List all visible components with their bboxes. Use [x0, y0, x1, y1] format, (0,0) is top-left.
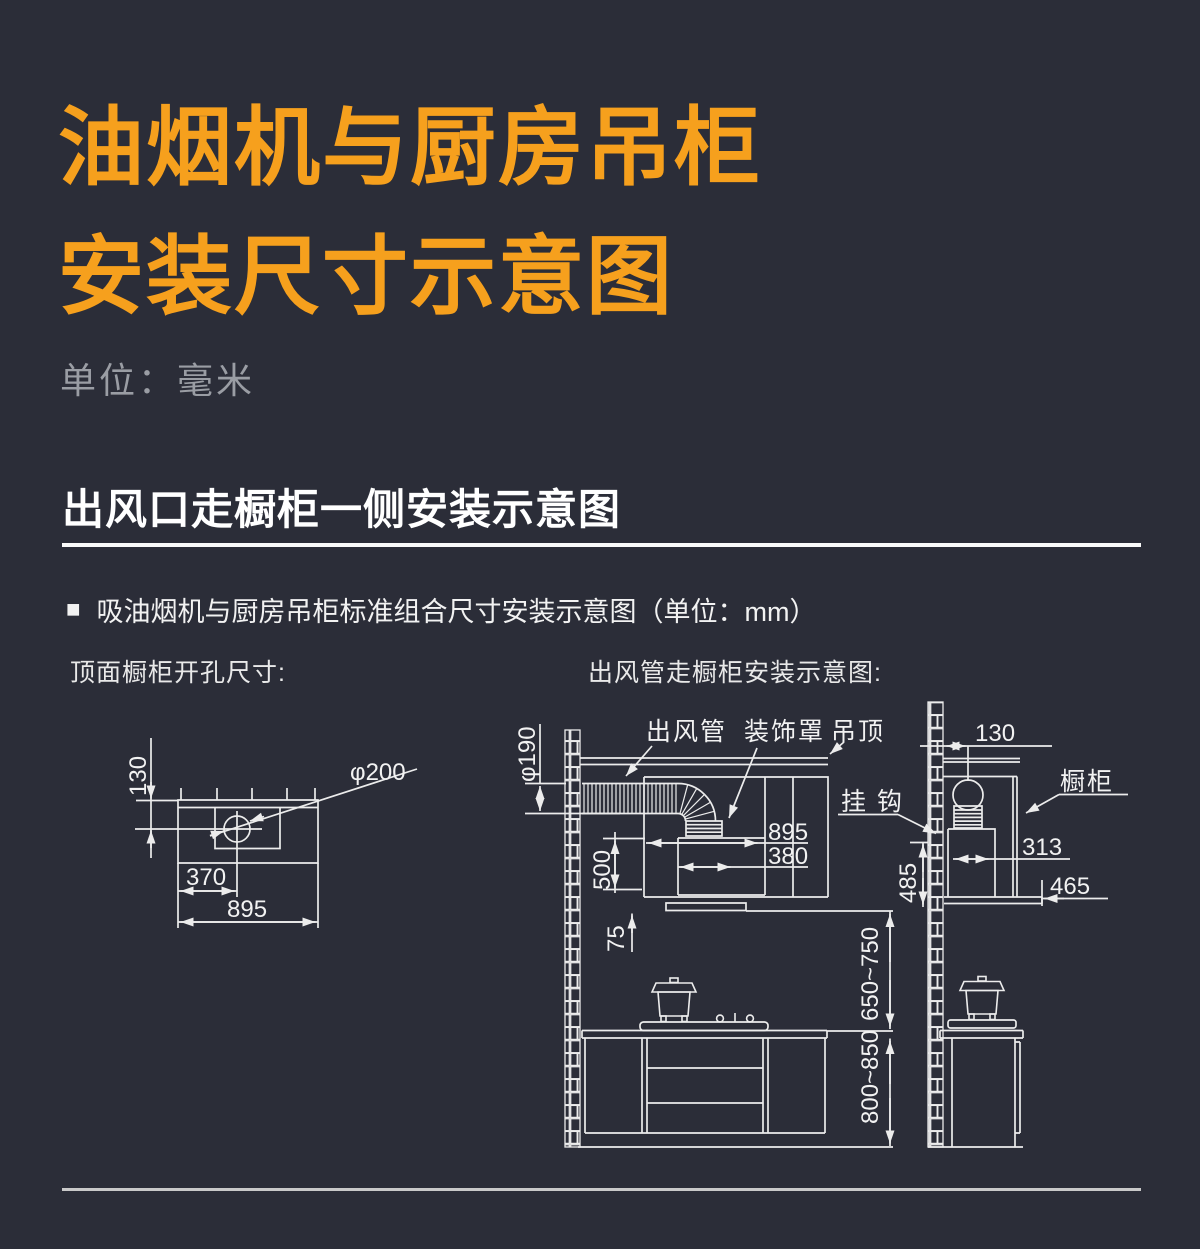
- dim-130r-label: 130: [975, 720, 1015, 747]
- right-burner: [717, 1013, 754, 1022]
- right-wall-brick: [928, 702, 943, 1147]
- dim-485-label: 485: [895, 863, 922, 903]
- right-diagram-label: 出风管走橱柜安装示意图:: [588, 653, 882, 689]
- dim-500-label: 500: [589, 850, 616, 890]
- section-subtitle-row: ■ 吸油烟机与厨房吊柜标准组合尺寸安装示意图（单位：mm）: [66, 590, 816, 629]
- hook-callout-leader: [838, 815, 936, 834]
- dim-313-label: 313: [1022, 834, 1062, 861]
- countertop-right: [940, 1031, 1023, 1039]
- ceiling-lines-right: [943, 759, 1020, 763]
- cabinet-callout-leader: [1026, 795, 1128, 814]
- duct-callout-leader: [626, 746, 652, 776]
- flex-duct-ribs: [584, 784, 676, 813]
- unit-note: 单位：毫米: [60, 352, 255, 404]
- page-title-line1: 油烟机与厨房吊柜: [58, 84, 762, 213]
- hood-bottom-lip: [666, 903, 746, 911]
- callout-cover-label: 装饰罩: [744, 718, 825, 746]
- dim-190-label: φ190: [514, 726, 541, 782]
- cabinet-right-outline: [943, 777, 1017, 898]
- dim-hood-895-label: 895: [768, 819, 808, 846]
- base-cabinet-right: [952, 1038, 1020, 1147]
- section-heading: 出风口走橱柜一侧安装示意图: [62, 476, 621, 537]
- bottom-separator: [62, 1188, 1141, 1191]
- hood-body-right: [948, 829, 995, 897]
- base-cabinet: [585, 1038, 825, 1133]
- installation-diagram: 130 φ200 370 895: [0, 700, 1200, 1160]
- page-title: 油烟机与厨房吊柜 安装尺寸示意图: [58, 84, 762, 342]
- dim-650-750-label: 650~750: [857, 927, 884, 1021]
- dim-465-label: 465: [1050, 873, 1090, 900]
- hood-bottom-right: [944, 897, 1042, 904]
- callout-hook-label: 挂 钩: [841, 788, 904, 816]
- ceiling-lines: [580, 758, 828, 765]
- heading-underline: [62, 543, 1141, 547]
- countertop: [582, 1031, 827, 1039]
- stove-panel: [640, 1022, 768, 1031]
- cooking-pot: [652, 978, 696, 1022]
- dim-130-label: 130: [125, 756, 152, 796]
- callout-ceiling-label: 吊顶: [831, 718, 885, 746]
- duct-collar: [686, 821, 722, 836]
- left-wall-brick: [565, 730, 580, 1147]
- callout-cabinet-label: 橱柜: [1060, 768, 1114, 796]
- dim-370-label: 370: [186, 864, 226, 891]
- cabinet-top-outline: [178, 800, 318, 863]
- dim-75-label: 75: [603, 925, 630, 952]
- cabinet-top-ticks: [181, 788, 315, 800]
- dim-flue-380-label: 380: [768, 843, 808, 870]
- page: { "colors": { "background": "#2b2d38", "…: [0, 0, 1200, 1249]
- dim-200-label: φ200: [350, 759, 406, 786]
- blower-collar: [954, 806, 982, 828]
- stove-panel-right: [948, 1020, 1016, 1028]
- callout-duct-label: 出风管: [646, 718, 727, 746]
- page-title-line2: 安装尺寸示意图: [58, 213, 762, 342]
- dim-895-label: 895: [227, 896, 267, 923]
- section-subtitle: 吸油烟机与厨房吊柜标准组合尺寸安装示意图（单位：mm）: [97, 590, 817, 629]
- left-diagram-label: 顶面橱柜开孔尺寸:: [70, 653, 286, 689]
- dim-800-850-label: 800~850: [857, 1030, 884, 1124]
- square-bullet-icon: ■: [66, 598, 81, 622]
- cooking-pot-right: [960, 977, 1004, 1020]
